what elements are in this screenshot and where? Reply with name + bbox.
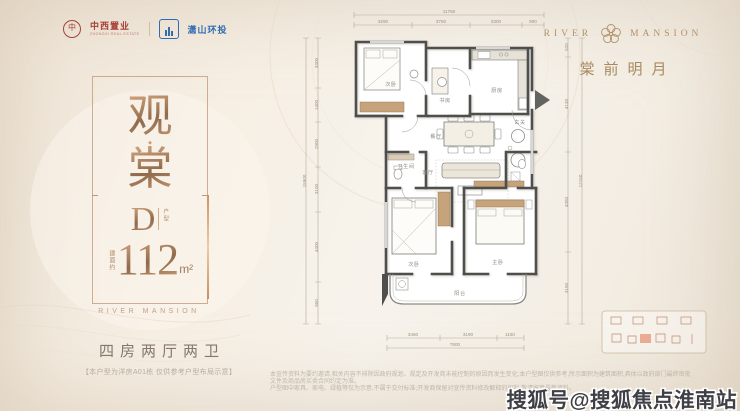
unit-letter: D	[131, 205, 156, 236]
dim-label: 3750	[436, 19, 447, 24]
room-label-kitchen: 厨房	[491, 86, 502, 94]
developer-logo-text: 中西置业	[90, 22, 140, 31]
unit-title-frame: 观 ◆ 棠 D 户型 建面约 112 m²	[92, 76, 208, 304]
sofa-icon	[442, 163, 500, 178]
dim-label: 3300	[491, 19, 502, 24]
room-label-bed2: 次卧	[385, 80, 396, 88]
sohu-watermark: 搜狐号@搜狐焦点淮南站	[507, 383, 738, 411]
partner-logo-text: 潇山环投	[188, 23, 228, 36]
dim-label: 3290	[378, 19, 389, 24]
area-unit: m²	[179, 262, 193, 276]
dining-table-icon	[444, 122, 494, 146]
room-label-foyer: 玄关	[514, 118, 525, 126]
dim-right-total: 12150	[578, 174, 583, 187]
frame-tick-left	[92, 195, 98, 196]
area-row: 建面约 112 m²	[107, 241, 193, 278]
dim-label: 4400	[314, 241, 319, 252]
fridge-icon	[519, 98, 527, 109]
bed-icon	[392, 198, 436, 254]
brand-mansion-text: MANSION	[630, 29, 702, 39]
dim-label: 3460	[408, 332, 419, 337]
dim-label: 4350	[564, 196, 569, 207]
highlighted-unit	[640, 334, 651, 343]
wardrobe-icon	[360, 102, 404, 112]
washing-machine-icon	[396, 278, 408, 290]
nightstand-icon	[468, 200, 474, 209]
dim-top-total: 11750	[443, 9, 456, 14]
flower-emblem-icon	[599, 22, 623, 46]
dim-label: 900	[529, 19, 537, 24]
room-label-bed3: 次卧	[408, 260, 419, 268]
chair-icon	[438, 78, 447, 87]
toilet-icon	[518, 159, 525, 168]
vanity-icon	[388, 154, 414, 160]
entry-arrow-icon	[535, 90, 550, 110]
dim-label: 3150	[564, 282, 569, 293]
dim-label: 1400	[314, 99, 319, 110]
frame-gradient-edge	[207, 195, 209, 299]
floorplan: 11750 3290 3750 3300 900 15900 3300 1400…	[292, 2, 592, 370]
unit-type-row: D 户型	[131, 205, 170, 236]
site-key-plan	[598, 306, 710, 358]
partner-building-icon	[159, 19, 179, 39]
room-label-dining: 餐厅	[430, 132, 441, 140]
brand-caption: RIVER MANSION	[92, 308, 206, 315]
unit-suffix-label: 户型	[158, 208, 169, 230]
title-char-tang: 棠	[127, 146, 172, 193]
room-label-study: 书房	[439, 96, 450, 104]
dim-bottom-total: 7800	[450, 342, 461, 347]
room-label-balcony: 阳台	[454, 289, 465, 297]
room-label-bath: 卫生间	[397, 162, 414, 170]
nightstand-icon	[526, 200, 532, 209]
area-prefix-label: 建面约	[107, 250, 116, 271]
title-char-guan: 观	[127, 93, 172, 140]
round-table-icon	[512, 130, 525, 143]
dim-label: 1150	[505, 332, 515, 337]
dim-label: 3190	[463, 332, 474, 337]
developer-logo-subtext: ZHONGXI REAL ESTATE	[90, 33, 140, 37]
logo-divider	[149, 22, 150, 36]
wardrobe-icon	[438, 192, 450, 226]
room-label-living: 客厅	[422, 168, 433, 176]
developer-seal-icon: 中	[63, 20, 81, 38]
tv-console-icon	[474, 181, 524, 187]
layout-description: 四房两厅两卫	[74, 340, 244, 361]
dim-label: 950	[314, 299, 319, 307]
area-number: 112	[117, 241, 178, 278]
kitchen-sink-icon	[478, 52, 490, 59]
dim-label: 4130	[564, 98, 569, 109]
logo-lockup: 中 中西置业 ZHONGXI REAL ESTATE 潇山环投	[63, 19, 228, 39]
dim-label: 2900	[314, 138, 319, 149]
room-label-master: 主卧	[492, 258, 503, 266]
poster: 中 中西置业 ZHONGXI REAL ESTATE 潇山环投 RIVER MA…	[0, 0, 740, 411]
unit-note: 【本户型为洋房A01栋 仅供参考户型布局示意】	[60, 367, 258, 377]
dim-left-total: 15900	[302, 174, 307, 187]
dim-label: 3300	[314, 57, 319, 68]
dim-label: 3100	[314, 183, 319, 194]
dim-label: 520	[564, 43, 569, 51]
toilet-icon	[394, 169, 402, 179]
project-title-vertical: 观 ◆ 棠	[127, 93, 172, 193]
